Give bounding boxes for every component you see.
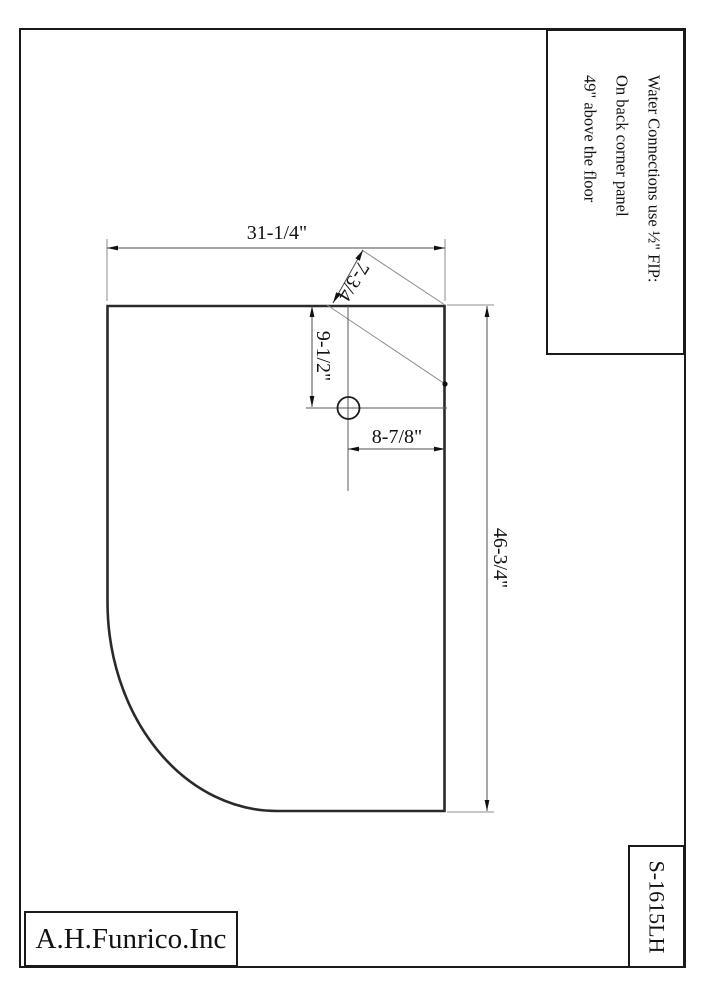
arrow-down-icon xyxy=(310,396,315,407)
dim-label-hole-from-top: 9-1/2" xyxy=(312,331,334,381)
connection-point-dot xyxy=(442,381,447,386)
note-text-rotated: Water Connections use ½" FIP: On back co… xyxy=(548,31,683,353)
note-line-3: 49" above the floor xyxy=(573,75,605,353)
arrow-down-icon xyxy=(485,800,490,811)
note-box: Water Connections use ½" FIP: On back co… xyxy=(546,29,685,355)
corner-panel-line xyxy=(327,305,445,384)
arrow-left-icon xyxy=(107,246,118,251)
dim-label-hole-from-side: 8-7/8" xyxy=(372,426,422,448)
arrow-right-icon xyxy=(434,246,445,251)
arrow-left-icon xyxy=(348,447,359,452)
model-title-block: S-1615LH xyxy=(628,845,685,968)
company-title-block: A.H.Funrico.Inc xyxy=(24,911,238,967)
note-line-2: On back corner panel xyxy=(605,75,637,353)
model-number: S-1615LH xyxy=(630,847,683,966)
dim-label-side-depth: 46-3/4" xyxy=(489,528,511,588)
dim-label-top-width: 31-1/4" xyxy=(247,222,307,244)
arrow-up-icon xyxy=(310,306,315,317)
corner-reference-line xyxy=(362,250,445,305)
dimension-arrowheads xyxy=(107,246,489,811)
arrow-up-icon xyxy=(485,306,490,317)
base-outline xyxy=(108,306,445,811)
company-name: A.H.Funrico.Inc xyxy=(36,923,227,956)
drawing-sheet: 31-1/4" 7-3/4 9-1/2" 8-7/8" 46-3/4" Wate… xyxy=(0,0,707,1000)
note-line-1: Water Connections use ½" FIP: xyxy=(637,75,669,353)
dim-label-corner-offset: 7-3/4 xyxy=(333,257,374,304)
